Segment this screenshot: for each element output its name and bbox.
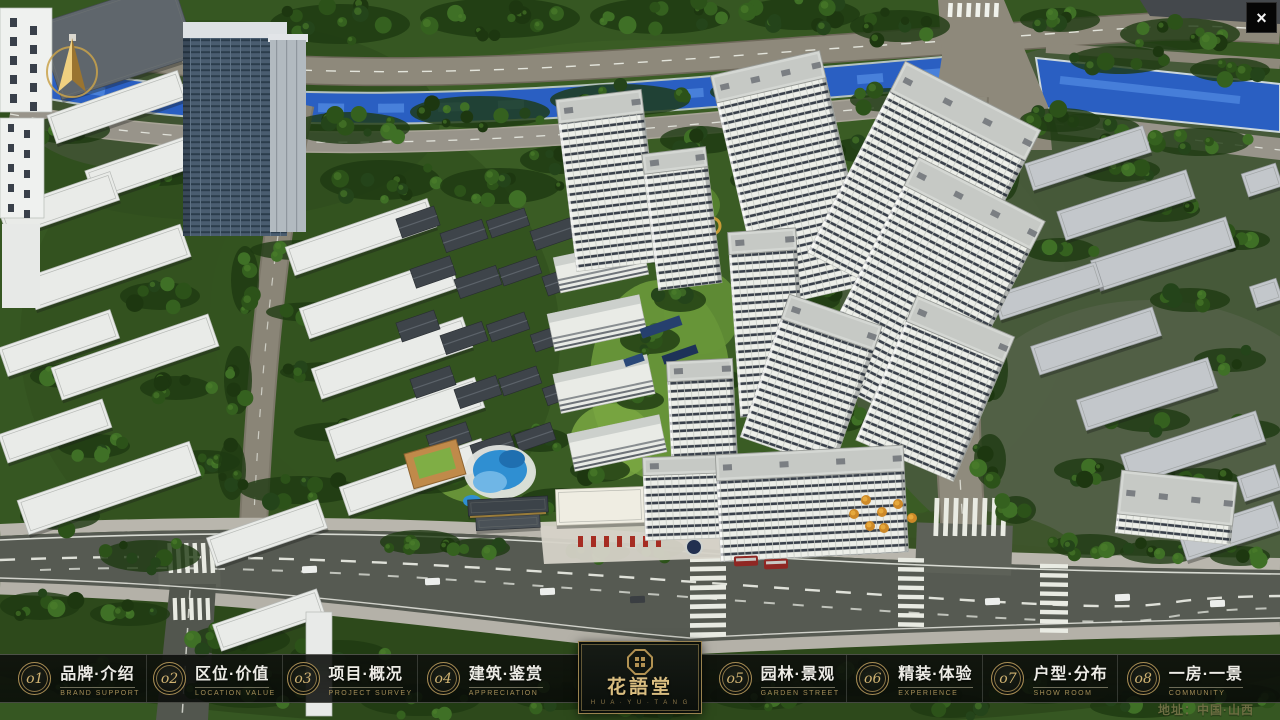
project-logo-panel: 花語堂 H U A · Y U · T A N G — [578, 641, 702, 714]
nav-number-badge-4: o4 — [427, 662, 460, 695]
nav-number-badge-5: o5 — [719, 662, 752, 695]
nav-number-2: o2 — [161, 671, 178, 687]
nav-label-en-7: SHOW ROOM — [1033, 690, 1092, 697]
project-title-latin: H U A · Y U · T A N G — [591, 700, 690, 706]
nav-label-zh-2: 区位·价值 — [195, 660, 269, 688]
nav-item-room-view[interactable]: o8 一房·一景COMMUNITY — [1117, 655, 1252, 702]
nav-label-en-5: GARDEN STREET — [761, 690, 840, 697]
presentation-window: × o1 品牌·介绍BRAND SUPPORT o2 区位·价值LOCATION… — [0, 0, 1280, 720]
nav-number-4: o4 — [435, 671, 452, 687]
nav-number-6: o6 — [864, 671, 881, 687]
nav-group-left: o1 品牌·介绍BRAND SUPPORT o2 区位·价值LOCATION V… — [12, 655, 552, 702]
nav-number-badge-1: o1 — [18, 662, 51, 695]
nav-label-zh-7: 户型·分布 — [1033, 660, 1107, 688]
nav-label-en-4: APPRECIATION — [469, 690, 539, 697]
nav-item-architecture[interactable]: o4 建筑·鉴赏APPRECIATION — [417, 655, 552, 702]
nav-number-badge-8: o8 — [1127, 662, 1160, 695]
nav-number-badge-6: o6 — [856, 662, 889, 695]
nav-label-zh-6: 精装·体验 — [898, 660, 972, 688]
close-button[interactable]: × — [1246, 2, 1277, 33]
nav-label-zh-4: 建筑·鉴赏 — [469, 660, 543, 688]
nav-number-badge-2: o2 — [153, 662, 186, 695]
masterplan-render-canvas — [0, 0, 1280, 720]
nav-number-8: o8 — [1135, 671, 1152, 687]
nav-number-badge-7: o7 — [991, 662, 1024, 695]
aerial-masterplan-view[interactable] — [0, 0, 1280, 720]
nav-label-en-3: PROJECT SURVEY — [329, 690, 413, 697]
nav-label-zh-8: 一房·一景 — [1169, 660, 1243, 688]
close-icon: × — [1256, 9, 1267, 27]
nav-label-en-6: EXPERIENCE — [898, 690, 958, 697]
nav-item-project-overview[interactable]: o3 项目·概况PROJECT SURVEY — [282, 655, 417, 702]
nav-group-right: o5 园林·景观GARDEN STREET o6 精装·体验EXPERIENCE… — [712, 655, 1252, 702]
nav-number-5: o5 — [726, 671, 743, 687]
nav-number-badge-3: o3 — [287, 662, 320, 695]
nav-number-7: o7 — [999, 671, 1016, 687]
compass-icon — [42, 32, 102, 109]
nav-item-brand-intro[interactable]: o1 品牌·介绍BRAND SUPPORT — [12, 655, 146, 702]
nav-item-floorplan-distribution[interactable]: o7 户型·分布SHOW ROOM — [982, 655, 1117, 702]
nav-label-en-8: COMMUNITY — [1169, 690, 1226, 697]
nav-number-3: o3 — [294, 671, 311, 687]
brand-seal-icon — [627, 649, 653, 675]
nav-label-zh-5: 园林·景观 — [761, 660, 835, 688]
nav-item-garden-landscape[interactable]: o5 园林·景观GARDEN STREET — [712, 655, 846, 702]
nav-item-decor-experience[interactable]: o6 精装·体验EXPERIENCE — [846, 655, 981, 702]
nav-number-1: o1 — [26, 671, 43, 687]
project-address: 地址：中国·山西 — [1158, 701, 1254, 718]
nav-item-location-value[interactable]: o2 区位·价值LOCATION VALUE — [146, 655, 281, 702]
nav-label-en-2: LOCATION VALUE — [195, 690, 276, 697]
project-title: 花語堂 — [607, 677, 673, 698]
nav-label-zh-3: 项目·概况 — [329, 660, 403, 688]
nav-label-zh-1: 品牌·介绍 — [60, 660, 134, 688]
nav-label-en-1: BRAND SUPPORT — [60, 690, 140, 697]
